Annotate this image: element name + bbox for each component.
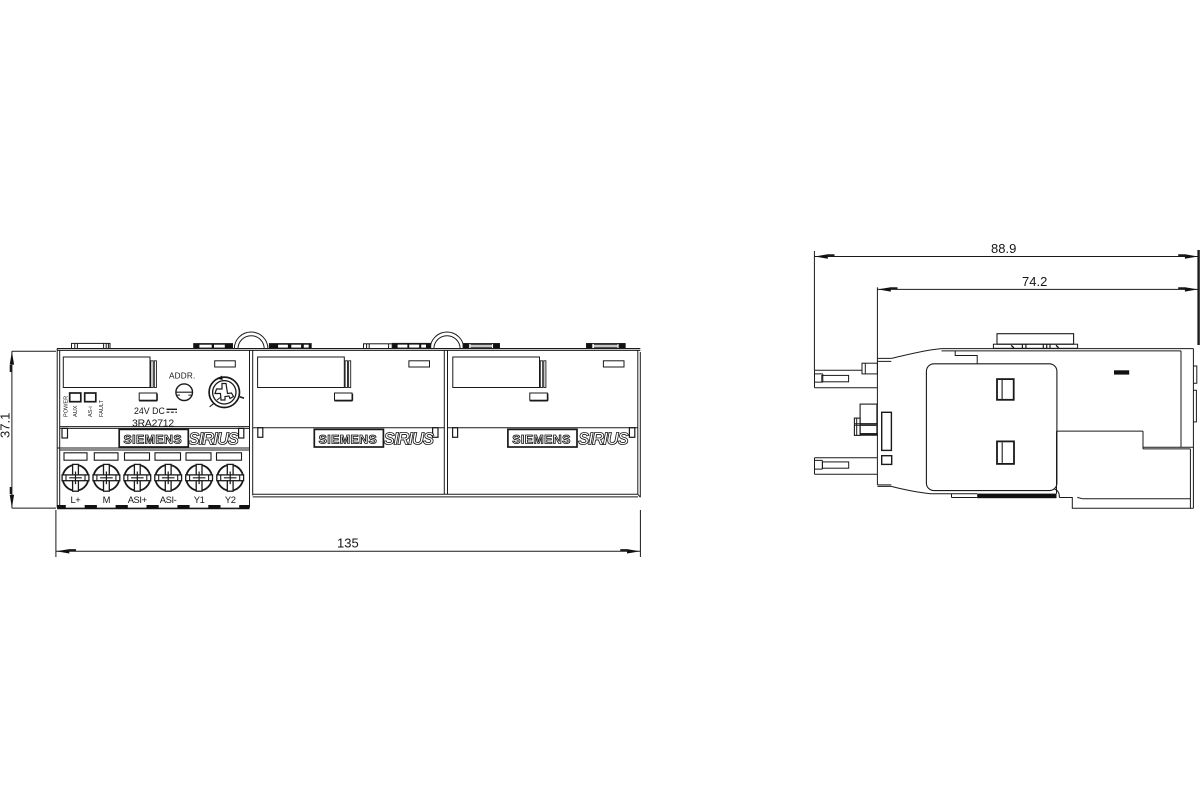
svg-text:SIRIUS: SIRIUS (578, 428, 629, 448)
svg-text:SIEMENS: SIEMENS (319, 433, 378, 447)
svg-text:FAULT: FAULT (99, 399, 105, 417)
svg-text:AUX: AUX (73, 405, 79, 417)
svg-text:135: 135 (337, 535, 359, 550)
svg-text:L+: L+ (70, 494, 81, 505)
svg-text:37.1: 37.1 (0, 413, 13, 438)
svg-text:ASI+: ASI+ (128, 494, 148, 505)
svg-text:88.9: 88.9 (991, 241, 1016, 256)
svg-text:ADDR.: ADDR. (169, 372, 195, 381)
svg-text:Y1: Y1 (194, 494, 205, 505)
svg-text:SIRIUS: SIRIUS (384, 428, 435, 448)
svg-text:SIEMENS: SIEMENS (512, 433, 571, 447)
svg-text:POWER: POWER (63, 396, 69, 417)
svg-text:M: M (103, 494, 111, 505)
svg-text:SIRIUS: SIRIUS (189, 428, 240, 448)
svg-text:74.2: 74.2 (1022, 274, 1047, 289)
svg-text:ASI-: ASI- (160, 494, 177, 505)
svg-text:SIEMENS: SIEMENS (124, 433, 183, 447)
svg-text:AS-i: AS-i (88, 406, 94, 417)
svg-text:24V DC: 24V DC (134, 406, 165, 416)
svg-text:Y2: Y2 (225, 494, 236, 505)
